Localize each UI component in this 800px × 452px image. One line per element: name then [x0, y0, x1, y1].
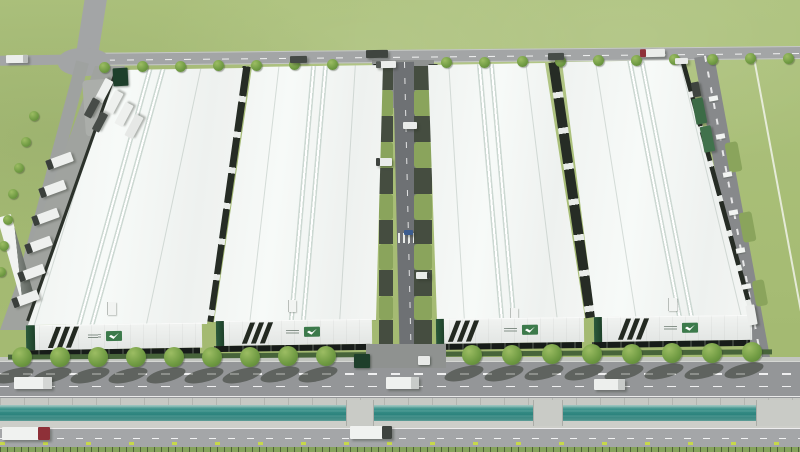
facade-corner-panel — [594, 317, 602, 342]
truck — [403, 122, 417, 129]
truck-cab — [38, 427, 50, 440]
facade-corner-panel — [436, 319, 444, 344]
canal-retaining-wall — [0, 398, 800, 405]
truck — [366, 50, 388, 58]
truck-cab — [382, 426, 392, 439]
tree — [12, 347, 32, 367]
truck — [640, 49, 665, 57]
truck-cab — [618, 379, 625, 390]
logo-text — [664, 326, 677, 330]
tree — [50, 347, 70, 367]
truck — [2, 427, 50, 440]
truck-cab — [376, 158, 380, 166]
truck — [376, 158, 392, 166]
truck-cab — [640, 49, 646, 57]
loading-bay — [379, 320, 393, 345]
loading-bay — [414, 244, 432, 270]
logo-text — [504, 328, 517, 332]
logo-bird-icon — [304, 327, 320, 337]
car — [404, 230, 413, 235]
tree — [707, 54, 718, 65]
roof-seam — [249, 60, 280, 326]
tree — [479, 57, 490, 68]
loading-bay — [379, 194, 393, 220]
truck — [6, 55, 28, 63]
tree — [88, 347, 108, 367]
gatehouse — [354, 354, 370, 368]
rooftop-unit — [668, 298, 677, 311]
tree — [783, 53, 794, 64]
lane-marking — [404, 62, 413, 374]
facade-logo — [88, 331, 122, 342]
roof-ridge — [626, 54, 683, 322]
logo-text — [286, 330, 299, 334]
tree — [126, 347, 146, 367]
tree — [240, 347, 260, 367]
rooftop-unit — [107, 302, 116, 315]
truck — [548, 53, 564, 60]
water-canal — [0, 405, 800, 421]
canal-bridge — [346, 400, 374, 426]
tree — [593, 55, 604, 66]
roof-ridge — [638, 54, 695, 322]
security-booth — [418, 356, 430, 365]
tree — [164, 347, 184, 367]
tree — [462, 345, 482, 365]
facade-logo — [504, 325, 538, 335]
tree — [662, 343, 682, 363]
warehouse-facade-2 — [216, 319, 372, 346]
canal-bank — [0, 421, 800, 428]
tree — [3, 215, 13, 225]
truck — [594, 379, 625, 390]
loading-bay — [379, 168, 393, 194]
facade-logo — [664, 323, 698, 333]
tree — [502, 345, 522, 365]
tree — [441, 57, 452, 68]
tree — [21, 137, 31, 147]
loading-bay — [414, 320, 432, 345]
logo-bird-icon — [682, 323, 698, 333]
tree — [702, 343, 722, 363]
tree — [213, 60, 224, 71]
logo-bird-icon — [522, 325, 538, 335]
gatehouse — [113, 68, 129, 87]
industrial-park-aerial-rendering — [0, 0, 800, 452]
loading-bay — [379, 220, 393, 244]
tree — [202, 347, 222, 367]
tree — [622, 344, 642, 364]
truck-cab — [376, 61, 381, 68]
facade-corner-panel — [26, 325, 35, 350]
loading-bay — [414, 116, 432, 142]
truck-cab — [43, 377, 52, 389]
truck — [416, 272, 430, 279]
logo-bird-icon — [106, 331, 122, 341]
tree — [327, 59, 338, 70]
loading-bay — [379, 244, 393, 270]
tree — [137, 61, 148, 72]
tree — [29, 111, 39, 121]
loading-bay — [414, 142, 432, 168]
canal-bridge — [756, 400, 800, 426]
tree — [175, 61, 186, 72]
rooftop-unit — [288, 300, 296, 312]
tree — [8, 189, 18, 199]
facade-corner-panel — [216, 321, 224, 346]
facade-logo — [286, 327, 320, 337]
truck-cab — [411, 377, 419, 389]
canal-bridge — [533, 400, 563, 426]
tree — [99, 62, 110, 73]
tree — [316, 346, 336, 366]
tree — [278, 346, 298, 366]
truck-cab — [427, 272, 430, 279]
tree — [517, 56, 528, 67]
tree — [542, 344, 562, 364]
lane-marking — [0, 438, 800, 439]
road-edge-line — [0, 396, 800, 398]
tree — [14, 163, 24, 173]
curb-markers — [0, 442, 800, 445]
loading-bay — [379, 270, 393, 296]
warehouse-facade-4 — [594, 315, 752, 342]
tree — [742, 342, 762, 362]
truck-cab — [23, 55, 28, 63]
truck — [14, 377, 52, 389]
tree — [251, 60, 262, 71]
loading-bay — [414, 296, 432, 320]
roof-seam — [339, 59, 356, 327]
truck — [350, 426, 392, 439]
truck — [386, 377, 419, 389]
tree — [582, 344, 602, 364]
truck — [376, 61, 396, 68]
truck — [290, 56, 307, 63]
roof-seam — [594, 54, 638, 323]
central-gate-plaza-south — [366, 344, 446, 368]
truck — [675, 58, 688, 64]
lane-marking — [70, 52, 800, 60]
loading-bay — [379, 296, 393, 320]
warehouse-facade-3 — [436, 317, 584, 344]
logo-text — [88, 334, 101, 338]
south-green-strip — [0, 447, 800, 452]
roof-seam — [448, 57, 465, 325]
tree — [745, 53, 756, 64]
loading-bay — [414, 168, 432, 194]
loading-bay — [414, 220, 432, 244]
south-frontage-road — [0, 428, 800, 448]
loading-bay — [414, 194, 432, 220]
